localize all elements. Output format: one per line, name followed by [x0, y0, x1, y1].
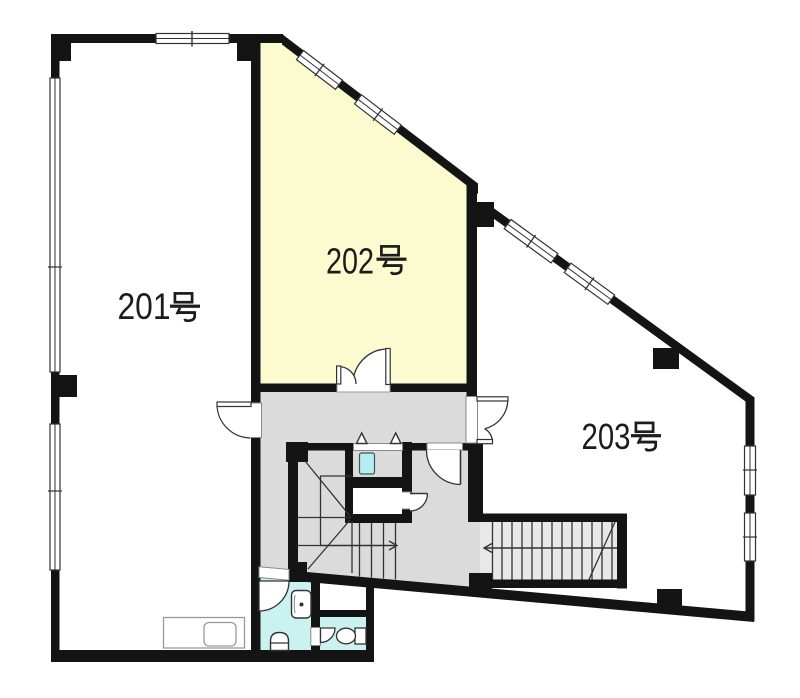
svg-text:203: 203 — [582, 416, 631, 457]
svg-text:202: 202 — [326, 241, 374, 282]
svg-text:201: 201 — [118, 286, 171, 327]
